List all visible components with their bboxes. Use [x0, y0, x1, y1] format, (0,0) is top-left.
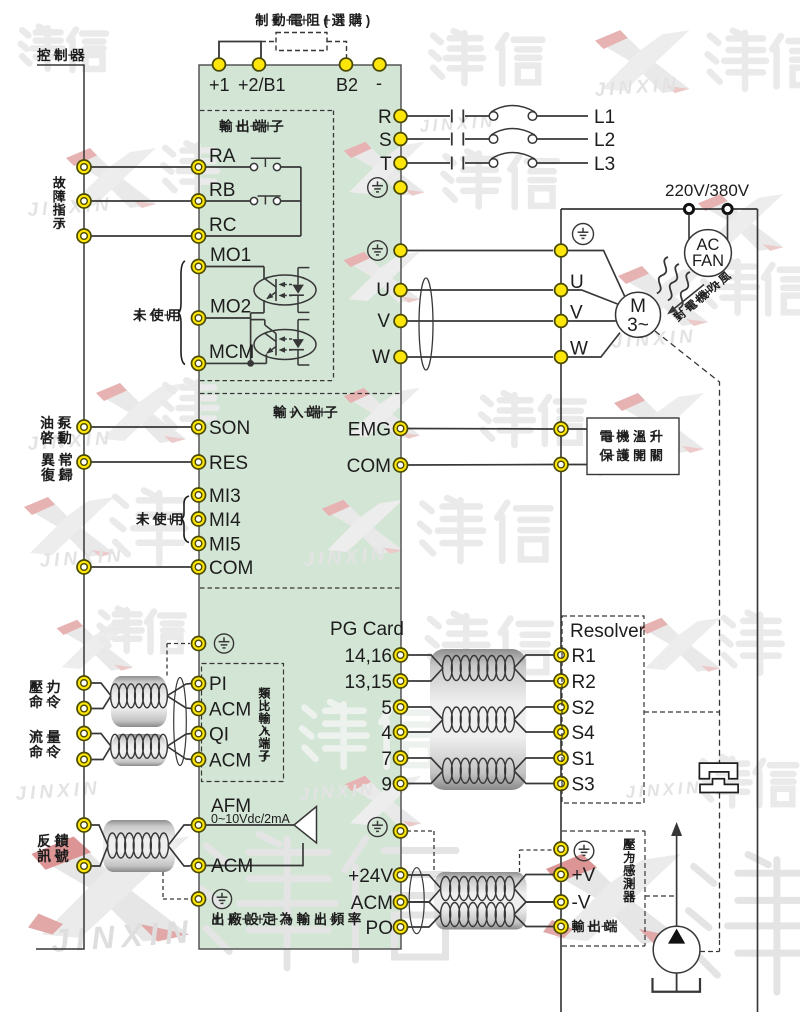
- svg-text:R: R: [378, 107, 392, 128]
- svg-text:L1: L1: [594, 107, 615, 128]
- svg-text:FAN: FAN: [692, 252, 724, 270]
- svg-text:3~: 3~: [627, 315, 649, 336]
- svg-text:13,15: 13,15: [344, 672, 392, 693]
- svg-text:MI3: MI3: [209, 486, 241, 507]
- svg-text:COM: COM: [209, 558, 253, 579]
- svg-text:V: V: [377, 311, 390, 332]
- svg-text:S2: S2: [572, 698, 595, 719]
- svg-text:-V: -V: [572, 893, 591, 914]
- svg-text:W: W: [570, 339, 588, 360]
- svg-text:S3: S3: [572, 775, 595, 796]
- svg-text:4: 4: [381, 723, 392, 744]
- svg-text:L2: L2: [594, 130, 615, 151]
- svg-text:MO2: MO2: [210, 297, 251, 318]
- svg-text:MI5: MI5: [209, 535, 241, 556]
- svg-text:S4: S4: [572, 723, 596, 744]
- svg-text:V: V: [570, 303, 583, 324]
- svg-text:-: -: [376, 73, 382, 93]
- svg-text:S: S: [379, 130, 392, 151]
- svg-text:Resolver: Resolver: [570, 621, 646, 642]
- svg-text:W: W: [372, 347, 390, 368]
- svg-text:L3: L3: [594, 154, 615, 175]
- svg-text:+24V: +24V: [348, 866, 393, 887]
- svg-text:5: 5: [381, 698, 392, 719]
- svg-text:U: U: [376, 280, 390, 301]
- svg-text:14,16: 14,16: [344, 646, 392, 667]
- svg-text:U: U: [570, 272, 584, 293]
- svg-text:QI: QI: [209, 725, 229, 746]
- svg-text:RES: RES: [209, 453, 248, 474]
- svg-text:T: T: [380, 154, 392, 175]
- svg-text:RB: RB: [209, 180, 235, 201]
- svg-text:COM: COM: [347, 456, 391, 477]
- svg-text:+1: +1: [209, 75, 230, 95]
- svg-text:+V: +V: [572, 865, 596, 886]
- svg-text:S1: S1: [572, 749, 595, 770]
- svg-text:MCM: MCM: [209, 342, 254, 363]
- svg-text:ACM: ACM: [351, 893, 393, 914]
- svg-text:ACM: ACM: [209, 700, 251, 721]
- svg-text:R2: R2: [572, 672, 596, 693]
- svg-text:RA: RA: [209, 146, 236, 167]
- svg-text:7: 7: [381, 749, 392, 770]
- svg-text:0~10Vdc/2mA: 0~10Vdc/2mA: [211, 812, 291, 826]
- svg-text:SON: SON: [209, 418, 250, 439]
- svg-text:MI4: MI4: [209, 510, 241, 531]
- svg-text:PO: PO: [366, 918, 393, 939]
- svg-text:PI: PI: [209, 674, 227, 695]
- svg-text:ACM: ACM: [209, 751, 251, 772]
- svg-text:220V/380V: 220V/380V: [665, 181, 750, 200]
- svg-text:ACM: ACM: [211, 856, 253, 877]
- svg-text:9: 9: [381, 775, 392, 796]
- svg-text:EMG: EMG: [348, 420, 391, 441]
- svg-text:+2/B1: +2/B1: [238, 75, 286, 95]
- svg-text:R1: R1: [572, 646, 596, 667]
- svg-text:PG Card: PG Card: [330, 619, 404, 640]
- svg-text:B2: B2: [336, 75, 358, 95]
- svg-text:M: M: [630, 296, 646, 317]
- svg-text:MO1: MO1: [210, 245, 251, 266]
- svg-text:RC: RC: [209, 215, 236, 236]
